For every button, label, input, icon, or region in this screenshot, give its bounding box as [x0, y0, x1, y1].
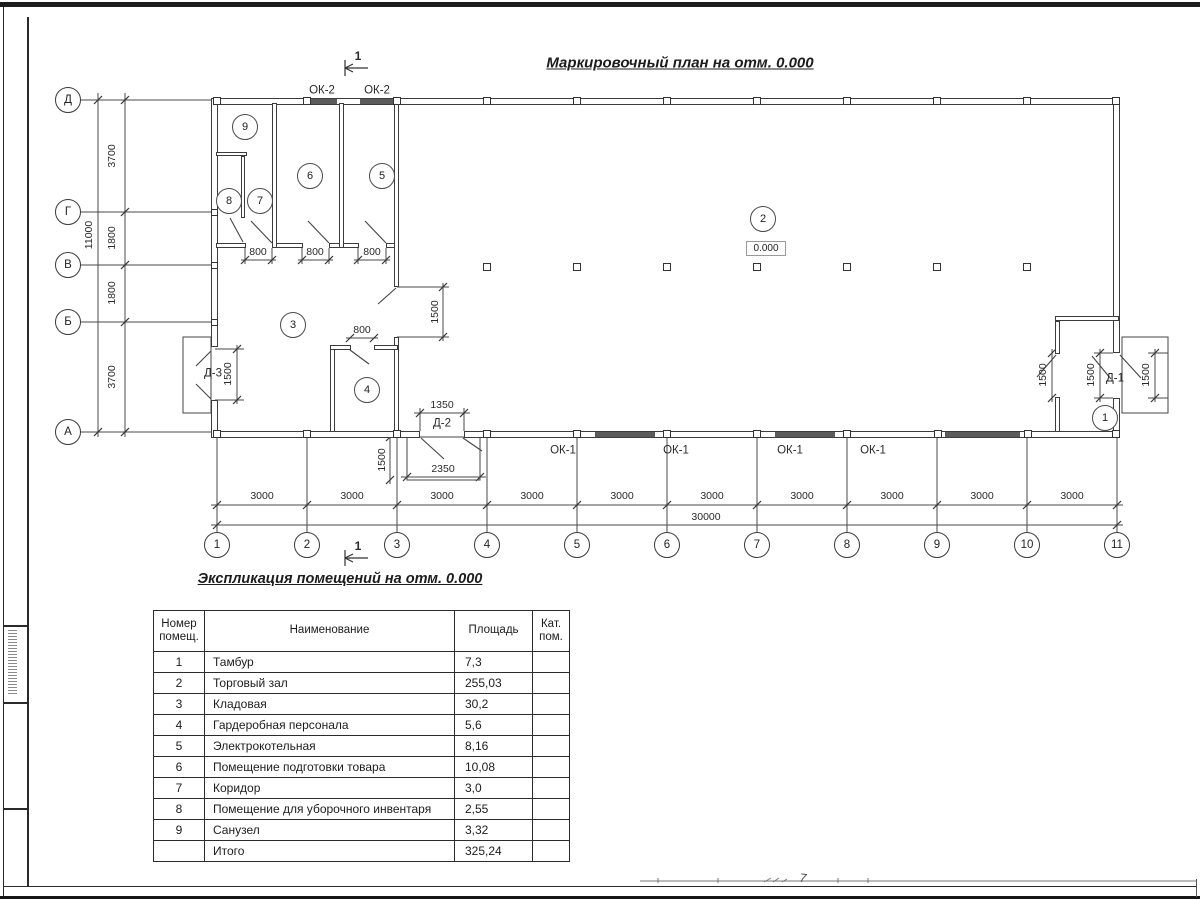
interior-wall [374, 345, 398, 350]
table-cell-num: 4 [154, 715, 205, 736]
table-cell-num: 7 [154, 778, 205, 799]
window-ok1 [775, 432, 835, 437]
axis-bubble-g: Г [55, 199, 81, 225]
column [1024, 430, 1032, 438]
column [483, 263, 491, 271]
dim-2350: 2350 [431, 464, 454, 475]
room-number: 9 [242, 121, 248, 133]
column [303, 97, 311, 105]
axis-label: 3 [394, 539, 400, 551]
room-number: 5 [379, 170, 385, 182]
table-cell-cat [533, 736, 570, 757]
table-row: 8Помещение для уборочного инвентаря2,55 [154, 799, 570, 820]
table-row: 4Гардеробная персонала5,6 [154, 715, 570, 736]
column [1112, 430, 1120, 438]
dim-3700: 3700 [107, 365, 118, 388]
sheet-right-line [1196, 879, 1197, 897]
axis-label: 8 [844, 539, 850, 551]
room-tag-4: 4 [354, 377, 380, 403]
dim-3000: 3000 [430, 491, 453, 502]
sheet-bottom-frame [3, 886, 1197, 887]
exterior-wall-bottom [211, 431, 420, 438]
table-row: 5Электрокотельная8,16 [154, 736, 570, 757]
dim-800: 800 [249, 247, 267, 258]
axis-label: Б [64, 316, 72, 328]
window-ok1 [945, 432, 1020, 437]
room-tag-8: 8 [216, 188, 242, 214]
dim-1800: 1800 [107, 281, 118, 304]
table-row: 2Торговый зал255,03 [154, 673, 570, 694]
door-mark-d1: Д-1 [1106, 373, 1124, 385]
dim-3000: 3000 [250, 491, 273, 502]
table-row: 9Санузел3,32 [154, 820, 570, 841]
axis-label: 2 [304, 539, 310, 551]
table-cell-name: Кладовая [205, 694, 455, 715]
table-cell-cat [533, 799, 570, 820]
column [393, 430, 401, 438]
schedule-body: 1Тамбур7,32Торговый зал255,033Кладовая30… [154, 652, 570, 862]
dim-800: 800 [363, 247, 381, 258]
exterior-wall-right [1113, 98, 1120, 353]
table-row: 6Помещение подготовки товара10,08 [154, 757, 570, 778]
table-cell-num: 6 [154, 757, 205, 778]
dim-3000: 3000 [610, 491, 633, 502]
schedule-title: Экспликация помещений на отм. 0.000 [198, 571, 483, 587]
column [211, 209, 218, 216]
dim-3000: 3000 [880, 491, 903, 502]
table-cell-name: Итого [205, 841, 455, 862]
header-room-name: Наименование [205, 611, 455, 652]
axis-bubble-b: Б [55, 309, 81, 335]
axis-bubble-10: 10 [1014, 532, 1040, 558]
column [843, 430, 851, 438]
table-cell-area: 30,2 [455, 694, 533, 715]
page-mark: 7 [799, 872, 807, 885]
axis-bubble-5: 5 [564, 532, 590, 558]
column [573, 97, 581, 105]
axis-bubble-v: В [55, 252, 81, 278]
dim-1500: 1500 [223, 362, 234, 385]
dim-1350: 1350 [430, 400, 453, 411]
room-number: 8 [226, 195, 232, 207]
section-mark-label: 1 [355, 540, 362, 552]
column [211, 262, 218, 269]
dim-800: 800 [306, 247, 324, 258]
table-cell-cat [533, 694, 570, 715]
table-cell-cat [533, 757, 570, 778]
table-cell-num: 2 [154, 673, 205, 694]
table-cell-num: 5 [154, 736, 205, 757]
table-cell-area: 3,32 [455, 820, 533, 841]
column [303, 430, 311, 438]
axis-bubble-2: 2 [294, 532, 320, 558]
column [483, 97, 491, 105]
table-cell-name: Коридор [205, 778, 455, 799]
table-cell-cat [533, 841, 570, 862]
sheet-left-outer-line [3, 7, 4, 897]
dim-1500: 1500 [1086, 363, 1097, 386]
axis-bubble-6: 6 [654, 532, 680, 558]
axis-label: 5 [574, 539, 580, 551]
column [933, 263, 941, 271]
door-leaves [196, 218, 1141, 459]
axis-bubble-4: 4 [474, 532, 500, 558]
drawing-sheet: Маркировочный план на отм. 0.000 Эксплик… [0, 0, 1200, 900]
dim-1800: 1800 [107, 226, 118, 249]
column [753, 430, 761, 438]
column [1112, 97, 1120, 105]
column [1023, 263, 1031, 271]
column [213, 97, 221, 105]
column [483, 430, 491, 438]
interior-wall [339, 103, 344, 248]
column [211, 319, 218, 326]
table-row: 7Коридор3,0 [154, 778, 570, 799]
axis-bubble-a: А [55, 419, 81, 445]
window-mark-ok1: ОК-1 [550, 445, 576, 457]
elevation-mark: 0.000 [746, 241, 786, 256]
interior-wall [330, 345, 351, 350]
table-cell-name: Электрокотельная [205, 736, 455, 757]
window-mark-ok1: ОК-1 [777, 445, 803, 457]
column [573, 263, 581, 271]
table-row: Итого325,24 [154, 841, 570, 862]
column [933, 97, 941, 105]
axis-label: 7 [754, 539, 760, 551]
room-number: 4 [364, 384, 370, 396]
axis-bubble-9: 9 [924, 532, 950, 558]
column [934, 430, 942, 438]
table-cell-area: 325,24 [455, 841, 533, 862]
table-cell-name: Гардеробная персонала [205, 715, 455, 736]
table-cell-cat [533, 673, 570, 694]
exterior-wall-left [211, 98, 218, 347]
interior-wall [394, 103, 399, 287]
table-cell-area: 5,6 [455, 715, 533, 736]
room-tag-9: 9 [232, 114, 258, 140]
axis-bubble-8: 8 [834, 532, 860, 558]
table-header-row: Номер помещ. Наименование Площадь Кат. п… [154, 611, 570, 652]
table-cell-num: 8 [154, 799, 205, 820]
table-cell-cat [533, 715, 570, 736]
table-cell-area: 7,3 [455, 652, 533, 673]
dim-3000: 3000 [700, 491, 723, 502]
axis-lines [80, 93, 1123, 532]
axis-bubble-3: 3 [384, 532, 410, 558]
axis-bubble-1: 1 [204, 532, 230, 558]
dim-1500: 1500 [1038, 363, 1049, 386]
axis-label: Г [65, 206, 71, 218]
axis-label: 9 [934, 539, 940, 551]
plan-title: Маркировочный план на отм. 0.000 [546, 55, 813, 72]
column [393, 97, 401, 105]
dimension-ticks [94, 96, 1121, 529]
room-number: 6 [307, 170, 313, 182]
dim-3000: 3000 [520, 491, 543, 502]
axis-bubble-7: 7 [744, 532, 770, 558]
room-tag-7: 7 [247, 188, 273, 214]
dim-1500: 1500 [377, 448, 388, 471]
tambour-wall [1055, 397, 1060, 432]
window-mark-ok2: ОК-2 [309, 85, 335, 97]
window-mark-ok1: ОК-1 [860, 445, 886, 457]
sheet-bottom-border [0, 896, 1200, 899]
window-mark-ok2: ОК-2 [364, 85, 390, 97]
stamp-divider [3, 808, 28, 810]
dim-1500: 1500 [1141, 363, 1152, 386]
axis-label: А [64, 426, 72, 438]
window-mark-ok1: ОК-1 [663, 445, 689, 457]
dim-3700: 3700 [107, 144, 118, 167]
interior-wall [241, 156, 245, 218]
elevation-value: 0.000 [753, 243, 778, 254]
header-room-category: Кат. пом. [533, 611, 570, 652]
table-cell-cat [533, 652, 570, 673]
room-tag-6: 6 [297, 163, 323, 189]
window-ok1 [595, 432, 655, 437]
column [573, 430, 581, 438]
table-cell-cat [533, 820, 570, 841]
table-cell-name: Помещение подготовки товара [205, 757, 455, 778]
room-tag-5: 5 [369, 163, 395, 189]
dim-3000: 3000 [1060, 491, 1083, 502]
dim-11000: 11000 [84, 221, 95, 249]
room-tag-1: 1 [1092, 405, 1118, 431]
header-room-area: Площадь [455, 611, 533, 652]
stamp-divider [3, 702, 28, 704]
axis-label: 4 [484, 539, 490, 551]
interior-wall [272, 103, 277, 248]
column [213, 430, 221, 438]
interior-wall [394, 337, 399, 432]
column [1023, 97, 1031, 105]
stamp-micro-text [8, 630, 17, 696]
room-number: 3 [290, 319, 296, 331]
table-cell-num: 3 [154, 694, 205, 715]
dim-1500: 1500 [430, 300, 441, 323]
tambour-wall [1055, 316, 1119, 321]
table-row: 1Тамбур7,3 [154, 652, 570, 673]
column [663, 263, 671, 271]
column [663, 430, 671, 438]
room-tag-3: 3 [280, 312, 306, 338]
table-cell-name: Санузел [205, 820, 455, 841]
dim-3000: 3000 [340, 491, 363, 502]
dim-800: 800 [353, 325, 371, 336]
dim-3000: 3000 [790, 491, 813, 502]
sheet-top-border [0, 2, 1200, 7]
axis-label: 1 [214, 539, 220, 551]
dim-3000: 3000 [970, 491, 993, 502]
column [753, 263, 761, 271]
table-cell-area: 2,55 [455, 799, 533, 820]
table-cell-num: 9 [154, 820, 205, 841]
table-cell-name: Помещение для уборочного инвентаря [205, 799, 455, 820]
tambour-wall [1055, 321, 1060, 354]
door-mark-d2: Д-2 [433, 418, 451, 430]
table-cell-name: Тамбур [205, 652, 455, 673]
axis-label: 11 [1111, 539, 1123, 551]
door-mark-d3: Д-3 [204, 368, 222, 380]
table-cell-num [154, 841, 205, 862]
interior-wall [330, 348, 335, 432]
table-cell-cat [533, 778, 570, 799]
room-tag-2: 2 [750, 206, 776, 232]
table-cell-area: 3,0 [455, 778, 533, 799]
small-dim-ticks [233, 256, 1159, 484]
table-cell-area: 255,03 [455, 673, 533, 694]
axis-label: 10 [1021, 539, 1034, 551]
header-room-number: Номер помещ. [154, 611, 205, 652]
axis-bubble-d: Д [55, 87, 81, 113]
column [663, 97, 671, 105]
stamp-divider [3, 625, 28, 627]
small-dimensions [215, 248, 1168, 484]
stamp-scribble [640, 878, 1197, 883]
interior-wall [329, 243, 359, 248]
table-cell-area: 8,16 [455, 736, 533, 757]
axis-label: Д [64, 94, 72, 106]
room-number: 2 [760, 213, 766, 225]
table-cell-area: 10,08 [455, 757, 533, 778]
window-ok2 [360, 99, 394, 104]
room-schedule-table: Номер помещ. Наименование Площадь Кат. п… [153, 610, 570, 862]
axis-bubble-11: 11 [1104, 532, 1130, 558]
room-number: 7 [257, 195, 263, 207]
column [843, 97, 851, 105]
table-cell-name: Торговый зал [205, 673, 455, 694]
column [753, 97, 761, 105]
axis-label: 6 [664, 539, 670, 551]
sheet-left-frame [27, 17, 29, 886]
room-number: 1 [1102, 412, 1108, 424]
section-mark-label: 1 [355, 50, 362, 62]
table-row: 3Кладовая30,2 [154, 694, 570, 715]
axis-label: В [64, 259, 72, 271]
column [843, 263, 851, 271]
dim-30000: 30000 [691, 512, 720, 523]
table-cell-num: 1 [154, 652, 205, 673]
interior-wall [216, 243, 246, 248]
